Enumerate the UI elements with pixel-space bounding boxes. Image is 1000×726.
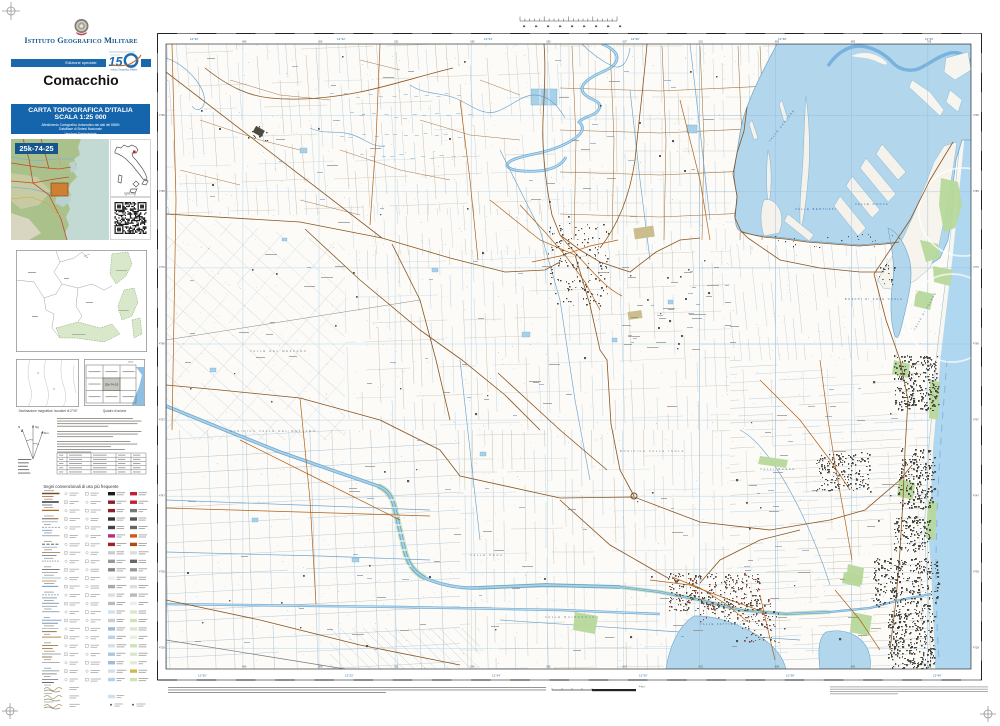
svg-text:VALLI BASSE: VALLI BASSE bbox=[760, 467, 796, 471]
svg-text:4776: 4776 bbox=[159, 265, 165, 269]
svg-text:12°32': 12°32' bbox=[345, 674, 354, 678]
svg-text:506: 506 bbox=[318, 40, 323, 44]
svg-text:4757: 4757 bbox=[973, 417, 979, 421]
svg-text:4 km: 4 km bbox=[639, 685, 645, 689]
svg-text:BOSCHI DI FOCE CAOLA: BOSCHI DI FOCE CAOLA bbox=[845, 298, 903, 301]
svg-text:683: 683 bbox=[851, 665, 856, 669]
svg-text:582: 582 bbox=[546, 40, 551, 44]
svg-text:708: 708 bbox=[927, 40, 932, 44]
svg-text:4747: 4747 bbox=[159, 494, 165, 498]
svg-text:N: N bbox=[18, 425, 20, 429]
svg-text:12°32': 12°32' bbox=[337, 37, 346, 41]
svg-text:VALLE FATTIBELLO: VALLE FATTIBELLO bbox=[700, 623, 746, 626]
svg-text:632: 632 bbox=[699, 40, 704, 44]
svg-text:506: 506 bbox=[318, 665, 323, 669]
svg-text:4785: 4785 bbox=[973, 189, 979, 193]
svg-text:658: 658 bbox=[775, 40, 780, 44]
svg-text:480: 480 bbox=[242, 40, 247, 44]
svg-text:12°30': 12°30' bbox=[190, 37, 199, 41]
svg-text:12°30': 12°30' bbox=[198, 674, 207, 678]
svg-text:VALLE NUOVA: VALLE NUOVA bbox=[855, 202, 889, 206]
svg-text:658: 658 bbox=[775, 665, 780, 669]
svg-text:480: 480 bbox=[242, 665, 247, 669]
svg-text:12°34': 12°34' bbox=[492, 674, 501, 678]
svg-text:4776: 4776 bbox=[973, 265, 979, 269]
svg-text:4795: 4795 bbox=[159, 113, 165, 117]
svg-text:15: 15 bbox=[109, 55, 124, 69]
svg-text:4728: 4728 bbox=[973, 646, 979, 650]
svg-text:12°40': 12°40' bbox=[933, 674, 942, 678]
svg-text:25k-74-25: 25k-74-25 bbox=[19, 144, 53, 153]
svg-text:12°38': 12°38' bbox=[786, 674, 795, 678]
svg-text:Ng: Ng bbox=[35, 425, 39, 429]
svg-text:12°36': 12°36' bbox=[639, 674, 648, 678]
svg-text:607: 607 bbox=[623, 665, 628, 669]
svg-text:12°36': 12°36' bbox=[631, 37, 640, 41]
svg-text:683: 683 bbox=[851, 40, 856, 44]
svg-text:607: 607 bbox=[623, 40, 628, 44]
svg-text:4785: 4785 bbox=[159, 189, 165, 193]
svg-text:VALLE DEL MEZZANO: VALLE DEL MEZZANO bbox=[250, 349, 308, 353]
svg-text:VALLE BERTUZZI: VALLE BERTUZZI bbox=[795, 207, 837, 211]
svg-text:25k-74-25: 25k-74-25 bbox=[105, 383, 119, 387]
svg-text:531: 531 bbox=[394, 665, 399, 669]
svg-text:582: 582 bbox=[546, 665, 551, 669]
svg-text:4766: 4766 bbox=[973, 341, 979, 345]
svg-text:BONIFICA VALLE ISOLA: BONIFICA VALLE ISOLA bbox=[620, 449, 685, 453]
svg-text:VALLE RAIBOSOLA: VALLE RAIBOSOLA bbox=[545, 615, 596, 619]
svg-text:531: 531 bbox=[394, 40, 399, 44]
svg-text:4738: 4738 bbox=[159, 570, 165, 574]
svg-text:1861: 1861 bbox=[129, 64, 136, 68]
svg-text:Segni convenzionali di uso più: Segni convenzionali di uso più frequente bbox=[43, 484, 119, 489]
svg-text:4757: 4757 bbox=[159, 417, 165, 421]
svg-text:4795: 4795 bbox=[973, 113, 979, 117]
svg-text:4747: 4747 bbox=[973, 494, 979, 498]
svg-text:556: 556 bbox=[470, 665, 475, 669]
svg-text:12°34': 12°34' bbox=[484, 37, 493, 41]
svg-text:4766: 4766 bbox=[159, 341, 165, 345]
svg-text:BONIFICA VALLE DEL MEZZANO: BONIFICA VALLE DEL MEZZANO bbox=[230, 429, 317, 433]
svg-text:708: 708 bbox=[927, 665, 932, 669]
svg-text:556: 556 bbox=[470, 40, 475, 44]
svg-text:VALLE PEGA: VALLE PEGA bbox=[470, 553, 504, 557]
svg-text:4738: 4738 bbox=[973, 570, 979, 574]
svg-text:12°38': 12°38' bbox=[778, 37, 787, 41]
svg-text:632: 632 bbox=[699, 665, 704, 669]
svg-text:igmi.org: igmi.org bbox=[124, 192, 136, 196]
svg-text:Nm: Nm bbox=[44, 431, 49, 435]
svg-text:4728: 4728 bbox=[159, 646, 165, 650]
